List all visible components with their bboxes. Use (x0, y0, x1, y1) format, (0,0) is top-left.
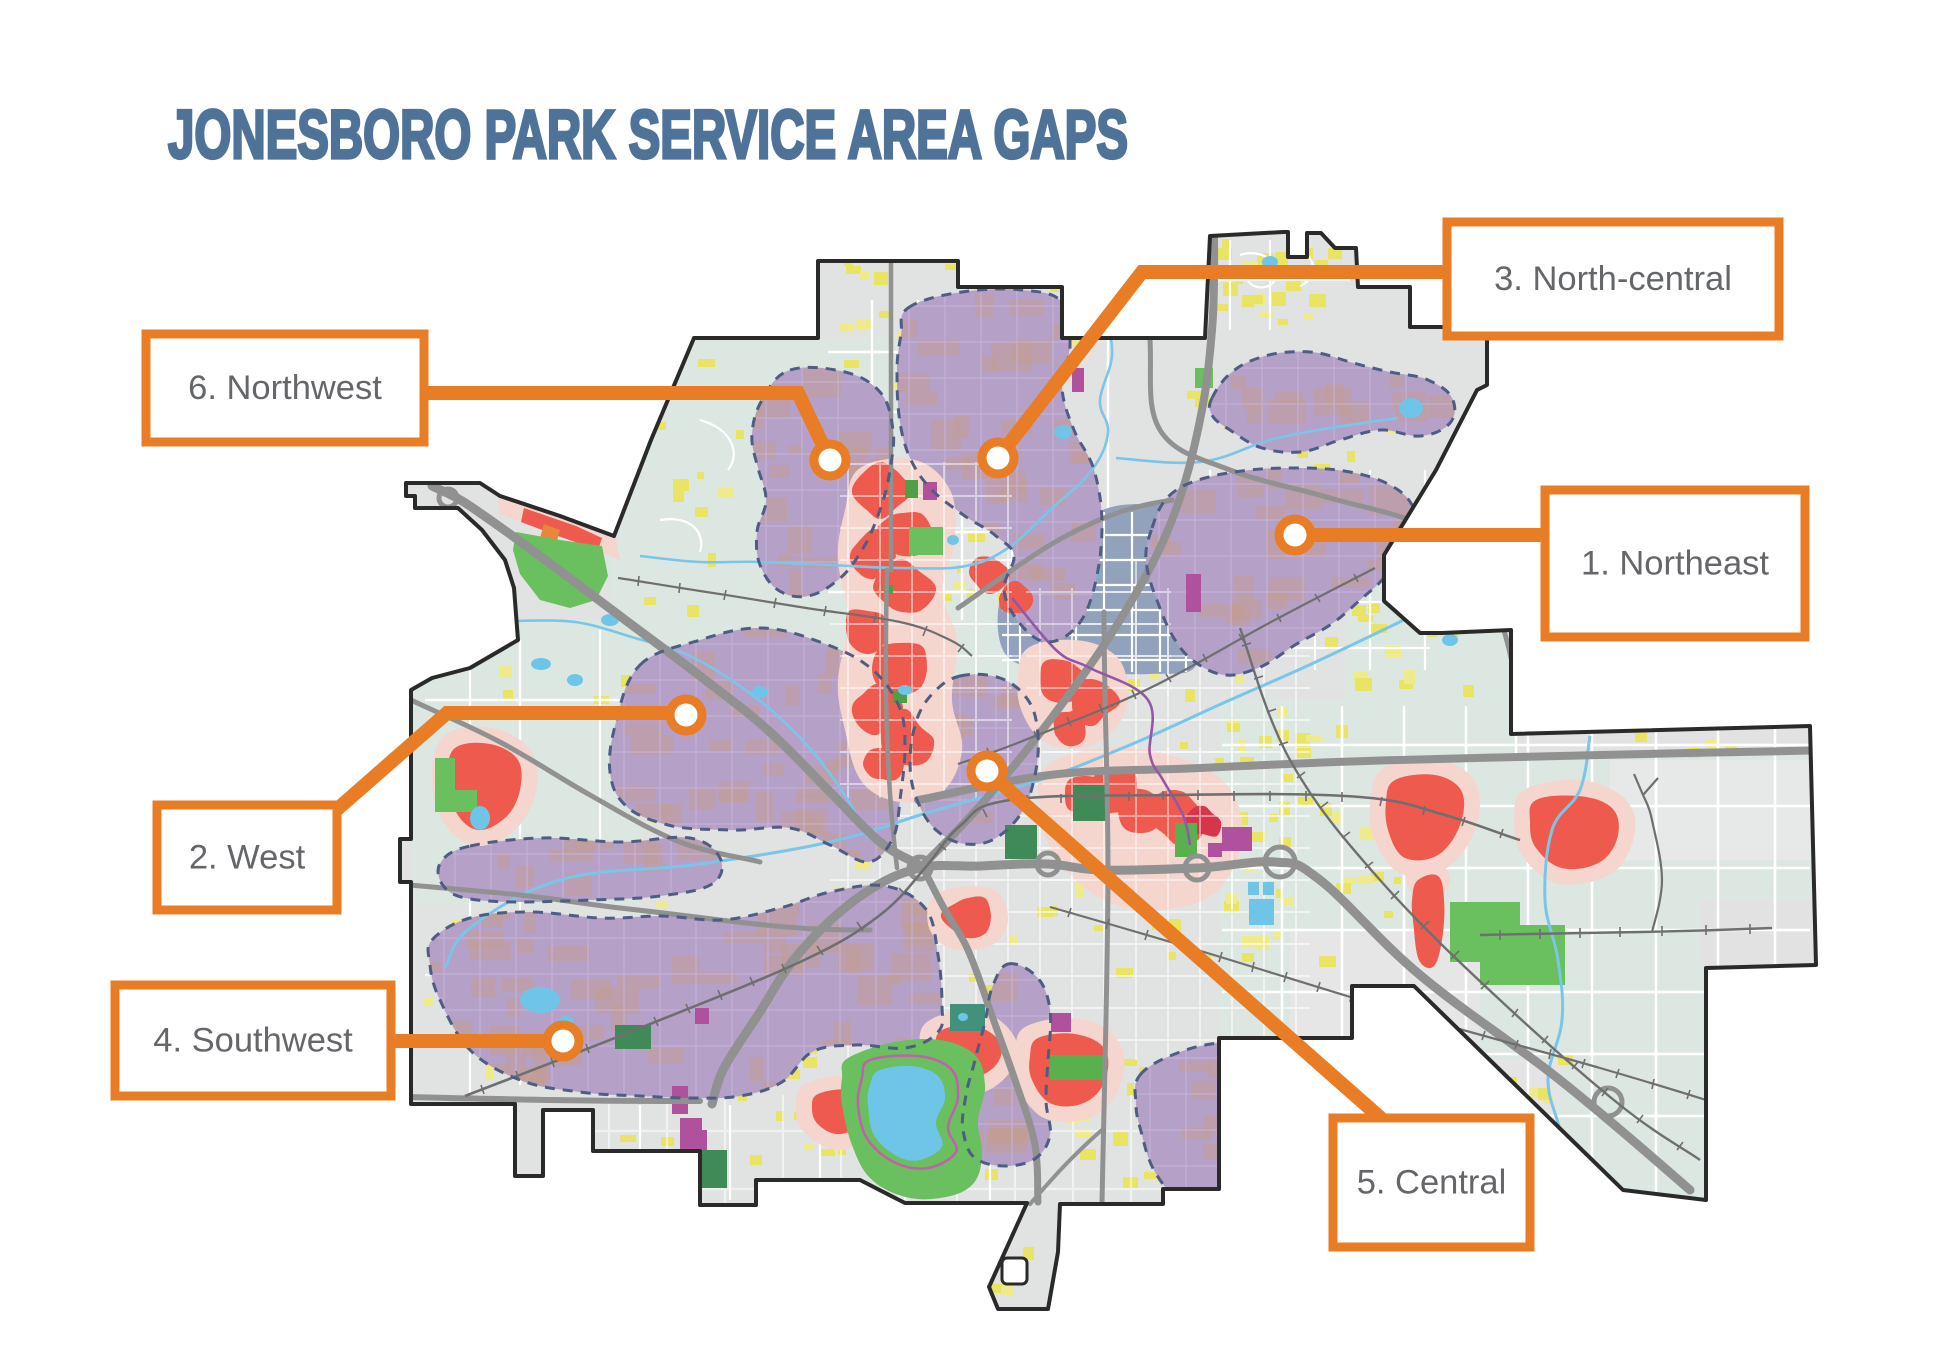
svg-text:4. Southwest: 4. Southwest (153, 1022, 353, 1060)
svg-text:JONESBORO PARK SERVICE AREA GA: JONESBORO PARK SERVICE AREA GAPS (168, 96, 1128, 173)
svg-text:5. Central: 5. Central (1357, 1164, 1507, 1202)
svg-text:2. West: 2. West (189, 839, 306, 877)
svg-text:3. North-central: 3. North-central (1494, 260, 1732, 298)
svg-text:6. Northwest: 6. Northwest (188, 369, 382, 407)
svg-text:1. Northeast: 1. Northeast (1581, 545, 1769, 583)
